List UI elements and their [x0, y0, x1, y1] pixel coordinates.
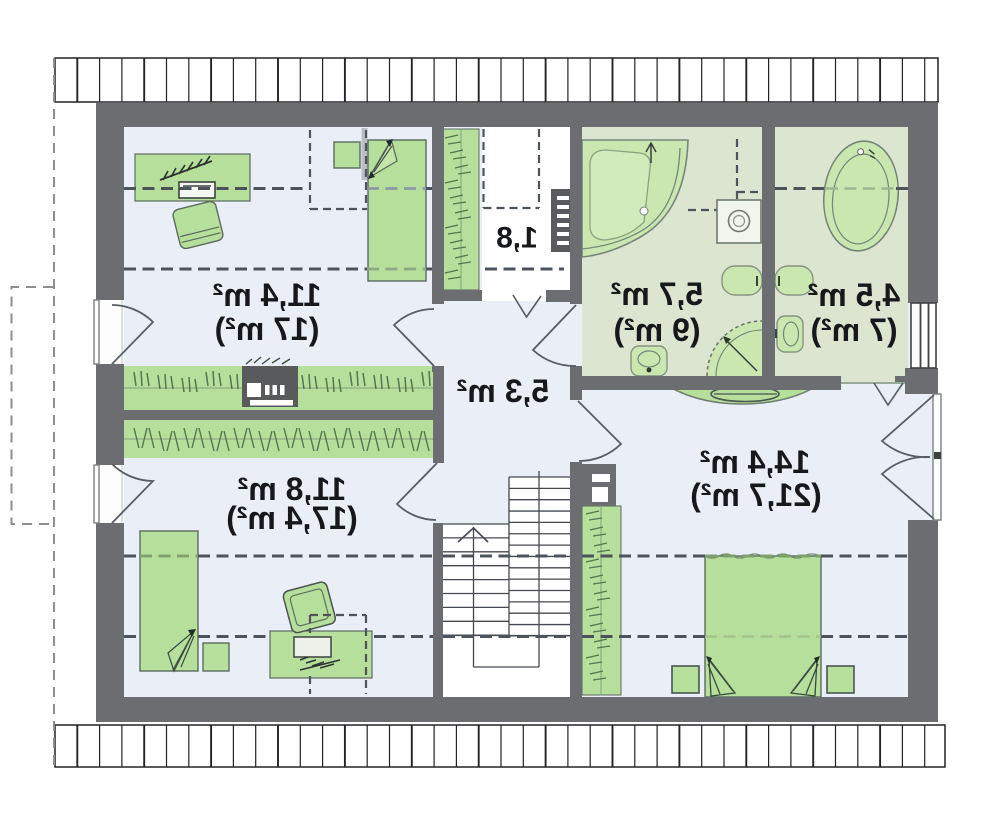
svg-text:(7 m²): (7 m²) [810, 312, 897, 348]
svg-text:(9 m²): (9 m²) [613, 312, 700, 348]
svg-text:(17 m²): (17 m²) [215, 311, 320, 347]
svg-text:1,8: 1,8 [496, 222, 538, 255]
svg-text:14,4 m²: 14,4 m² [700, 444, 810, 480]
svg-text:5,7 m²: 5,7 m² [611, 276, 703, 312]
svg-text:4,5 m²: 4,5 m² [808, 277, 900, 313]
svg-text:(21,7 m²): (21,7 m²) [690, 477, 822, 513]
svg-text:5,3 m²: 5,3 m² [457, 373, 549, 409]
svg-text:11,4 m²: 11,4 m² [213, 277, 322, 313]
svg-text:(17,4 m²): (17,4 m²) [226, 500, 358, 536]
